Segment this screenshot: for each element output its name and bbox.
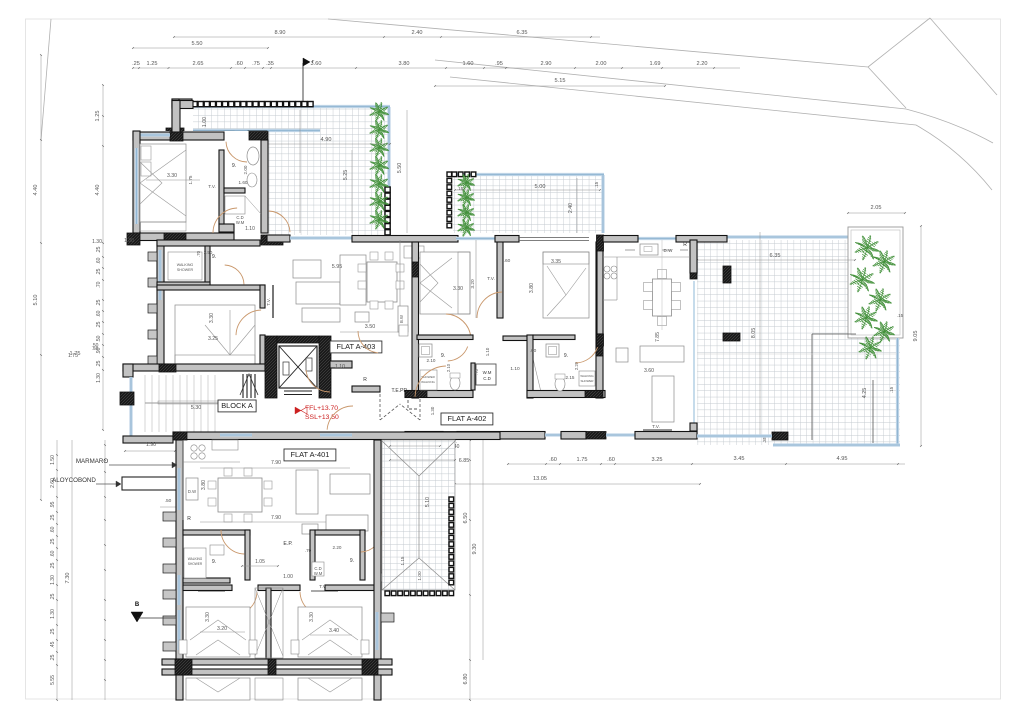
- svg-text:9.: 9.: [212, 559, 216, 565]
- svg-text:W.M: W.M: [483, 370, 492, 375]
- svg-text:6.50: 6.50: [463, 513, 469, 524]
- svg-text:D.W: D.W: [664, 248, 674, 253]
- svg-text:1.00: 1.00: [417, 571, 423, 581]
- svg-text:.15: .15: [594, 181, 599, 188]
- svg-text:2.00: 2.00: [596, 61, 607, 67]
- svg-text:2.65: 2.65: [193, 61, 204, 67]
- svg-text:5.50: 5.50: [397, 163, 403, 174]
- svg-text:1.60: 1.60: [463, 61, 474, 67]
- svg-text:2.40: 2.40: [412, 30, 423, 36]
- svg-text:.25: .25: [50, 514, 56, 521]
- svg-text:.25: .25: [96, 268, 102, 275]
- svg-text:SHOWER: SHOWER: [580, 379, 593, 383]
- svg-text:5.50: 5.50: [192, 41, 203, 47]
- svg-text:.15: .15: [889, 386, 894, 393]
- svg-text:3.25: 3.25: [652, 457, 663, 463]
- svg-text:.50: .50: [92, 346, 99, 352]
- svg-text:SSL+13.50: SSL+13.50: [305, 414, 339, 421]
- svg-text:.25: .25: [50, 593, 56, 600]
- svg-text:W.M: W.M: [314, 571, 323, 576]
- svg-text:2.90: 2.90: [541, 61, 552, 67]
- svg-text:.25: .25: [132, 61, 140, 67]
- svg-text:.70: .70: [96, 281, 102, 288]
- svg-text:4.95: 4.95: [837, 456, 848, 462]
- svg-text:WALKING: WALKING: [421, 380, 435, 384]
- svg-text:1.10: 1.10: [510, 366, 520, 372]
- svg-text:.45: .45: [50, 641, 56, 648]
- svg-text:1.05: 1.05: [255, 559, 265, 565]
- svg-text:3.45: 3.45: [734, 456, 745, 462]
- svg-text:1.75: 1.75: [577, 457, 588, 463]
- svg-text:2.40: 2.40: [568, 203, 574, 213]
- svg-text:8.90: 8.90: [275, 30, 286, 36]
- svg-text:4.25: 4.25: [862, 388, 868, 399]
- svg-text:3.20: 3.20: [217, 626, 227, 632]
- svg-text:.70: .70: [474, 368, 479, 374]
- svg-text:3.25: 3.25: [208, 336, 218, 342]
- svg-text:9.: 9.: [564, 353, 568, 359]
- svg-text:.50: .50: [96, 335, 102, 342]
- svg-text:.25: .25: [50, 538, 56, 545]
- svg-text:9.: 9.: [441, 353, 445, 359]
- svg-text:.15: .15: [457, 186, 464, 191]
- svg-text:ALOYCOBOND: ALOYCOBOND: [52, 477, 96, 484]
- svg-text:.60: .60: [607, 457, 615, 463]
- svg-text:1.30: 1.30: [50, 609, 56, 619]
- svg-text:2.50: 2.50: [204, 250, 213, 255]
- svg-text:1.60: 1.60: [239, 180, 248, 185]
- svg-text:MARMARO: MARMARO: [76, 458, 108, 465]
- svg-text:3.60: 3.60: [644, 368, 654, 374]
- svg-text:.60: .60: [504, 258, 511, 264]
- svg-text:.25: .25: [50, 628, 56, 635]
- svg-text:.25: .25: [96, 321, 102, 328]
- svg-text:5.10: 5.10: [425, 497, 431, 507]
- svg-text:C.D: C.D: [483, 376, 491, 381]
- svg-text:7.85: 7.85: [655, 332, 661, 342]
- svg-text:.60: .60: [96, 257, 102, 264]
- svg-text:FFL+13.70: FFL+13.70: [305, 405, 338, 412]
- svg-text:1.30: 1.30: [124, 238, 134, 244]
- svg-text:1.00: 1.00: [202, 117, 208, 127]
- svg-text:2.15: 2.15: [566, 375, 575, 380]
- svg-text:.25: .25: [96, 360, 102, 367]
- svg-text:6.35: 6.35: [517, 30, 528, 36]
- svg-text:R: R: [187, 516, 191, 522]
- svg-text:.25: .25: [50, 654, 56, 661]
- svg-text:BLOCK A: BLOCK A: [221, 401, 253, 410]
- svg-text:3.30: 3.30: [309, 612, 315, 622]
- svg-text:9.: 9.: [350, 558, 354, 564]
- svg-text:2.20: 2.20: [697, 61, 708, 67]
- svg-text:5.00: 5.00: [535, 184, 546, 190]
- svg-text:9.05: 9.05: [913, 331, 919, 342]
- svg-text:.60: .60: [96, 310, 102, 317]
- svg-text:3.30: 3.30: [453, 286, 463, 292]
- svg-text:5.30: 5.30: [191, 405, 202, 411]
- svg-text:R: R: [363, 377, 367, 383]
- svg-text:1.10: 1.10: [335, 364, 345, 370]
- svg-text:3.30: 3.30: [205, 612, 211, 622]
- svg-text:W.M: W.M: [236, 220, 245, 225]
- svg-text:.60: .60: [50, 526, 56, 533]
- svg-text:.25: .25: [96, 299, 102, 306]
- svg-text:4.40: 4.40: [95, 185, 101, 196]
- svg-text:1.15: 1.15: [400, 556, 405, 565]
- svg-text:.15: .15: [897, 313, 904, 318]
- svg-text:T.V.: T.V.: [487, 276, 495, 282]
- svg-text:.95: .95: [50, 501, 56, 508]
- svg-text:.70: .70: [196, 250, 201, 257]
- svg-text:2.10: 2.10: [446, 363, 451, 372]
- svg-text:7.90: 7.90: [271, 460, 281, 466]
- svg-text:1.10: 1.10: [485, 347, 490, 356]
- svg-text:8.05: 8.05: [751, 328, 757, 339]
- svg-text:7.90: 7.90: [271, 515, 281, 521]
- svg-text:2.05: 2.05: [871, 205, 882, 211]
- svg-text:3.80: 3.80: [201, 480, 207, 490]
- svg-text:1.30: 1.30: [430, 406, 435, 415]
- svg-text:6.85: 6.85: [459, 458, 470, 464]
- svg-text:3.30: 3.30: [167, 173, 177, 179]
- svg-text:WALKING: WALKING: [580, 374, 594, 378]
- svg-text:5.95: 5.95: [332, 264, 343, 270]
- svg-text:4.90: 4.90: [321, 137, 332, 143]
- svg-text:.60: .60: [235, 61, 243, 67]
- svg-text:1.90: 1.90: [146, 442, 156, 448]
- svg-text:T.V.: T.V.: [266, 298, 272, 306]
- svg-text:4.40: 4.40: [33, 185, 39, 196]
- svg-text:1.25: 1.25: [95, 111, 101, 122]
- svg-text:7.30: 7.30: [65, 573, 71, 584]
- svg-text:SHOWER: SHOWER: [177, 268, 194, 272]
- svg-text:WALKING: WALKING: [177, 263, 194, 267]
- svg-text:.35: .35: [266, 61, 274, 67]
- svg-text:2.20: 2.20: [333, 545, 342, 550]
- svg-text:3.35: 3.35: [551, 259, 561, 265]
- svg-text:1.75: 1.75: [68, 353, 78, 359]
- svg-text:3.20: 3.20: [470, 279, 476, 289]
- svg-text:2.10: 2.10: [427, 358, 436, 363]
- svg-text:WALKING: WALKING: [188, 557, 203, 561]
- svg-text:1.69: 1.69: [650, 61, 661, 67]
- svg-text:B: B: [135, 602, 140, 608]
- svg-text:1.00: 1.00: [283, 574, 293, 580]
- svg-text:2.00: 2.00: [243, 165, 248, 174]
- svg-text:.60: .60: [549, 457, 557, 463]
- svg-text:1.25: 1.25: [147, 61, 158, 67]
- svg-text:T.V.: T.V.: [208, 184, 216, 189]
- svg-text:3.80: 3.80: [399, 61, 410, 67]
- svg-text:.70: .70: [305, 548, 312, 553]
- svg-text:E.P.: E.P.: [283, 541, 292, 547]
- svg-text:13.05: 13.05: [533, 476, 547, 482]
- svg-text:5.15: 5.15: [555, 78, 566, 84]
- svg-text:FLAT A-402: FLAT A-402: [448, 414, 487, 423]
- svg-text:.60: .60: [530, 348, 537, 354]
- svg-text:1.30: 1.30: [92, 239, 102, 245]
- svg-text:3.80: 3.80: [529, 283, 535, 293]
- svg-text:R: R: [683, 242, 687, 248]
- svg-text:1.10: 1.10: [245, 226, 255, 232]
- svg-text:.60: .60: [50, 550, 56, 557]
- svg-text:9.30: 9.30: [472, 544, 478, 555]
- svg-text:6.35: 6.35: [770, 253, 781, 259]
- svg-text:5.10: 5.10: [33, 295, 39, 306]
- svg-text:5.55: 5.55: [50, 675, 56, 685]
- svg-text:3.30: 3.30: [209, 313, 215, 323]
- svg-text:1.50: 1.50: [50, 455, 56, 465]
- svg-text:1.75: 1.75: [188, 175, 193, 184]
- svg-text:.95: .95: [495, 61, 503, 67]
- svg-text:T.V.: T.V.: [652, 424, 660, 430]
- svg-text:.50: .50: [165, 498, 172, 504]
- svg-text:.25: .25: [96, 246, 102, 253]
- svg-text:3.40: 3.40: [329, 628, 339, 634]
- svg-text:1.30: 1.30: [96, 373, 102, 383]
- svg-text:FLAT A-401: FLAT A-401: [291, 450, 330, 459]
- svg-text:SHOWER: SHOWER: [188, 562, 203, 566]
- svg-text:9.: 9.: [212, 254, 216, 260]
- svg-text:.75: .75: [252, 61, 260, 67]
- svg-text:5.25: 5.25: [343, 170, 349, 181]
- svg-text:9.: 9.: [232, 163, 236, 169]
- svg-text:1.30: 1.30: [50, 575, 56, 585]
- svg-text:6.80: 6.80: [463, 674, 469, 685]
- svg-text:B.W: B.W: [399, 315, 404, 323]
- svg-text:3.50: 3.50: [365, 324, 376, 330]
- svg-text:.25: .25: [50, 562, 56, 569]
- svg-text:FLAT A-403: FLAT A-403: [337, 342, 376, 351]
- svg-text:D.W: D.W: [188, 489, 196, 494]
